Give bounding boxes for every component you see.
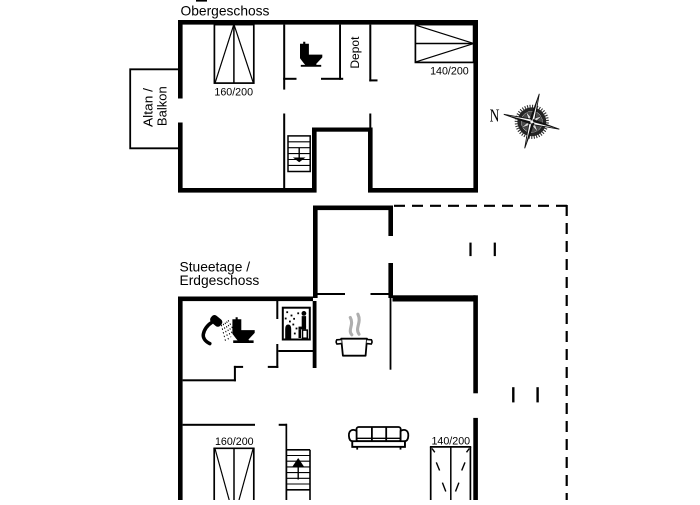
svg-text:160/200: 160/200 — [215, 436, 254, 448]
svg-text:Balkon: Balkon — [155, 86, 170, 126]
svg-text:Depot: Depot — [348, 36, 362, 69]
svg-text:Altan /: Altan / — [141, 88, 156, 127]
svg-text:Erdgeschoss: Erdgeschoss — [180, 273, 260, 288]
svg-text:140/200: 140/200 — [430, 66, 469, 78]
svg-text:N: N — [490, 105, 500, 125]
svg-text:140/200: 140/200 — [431, 436, 470, 448]
svg-text:Obergeschoss: Obergeschoss — [181, 4, 270, 19]
svg-text:160/200: 160/200 — [214, 86, 253, 98]
